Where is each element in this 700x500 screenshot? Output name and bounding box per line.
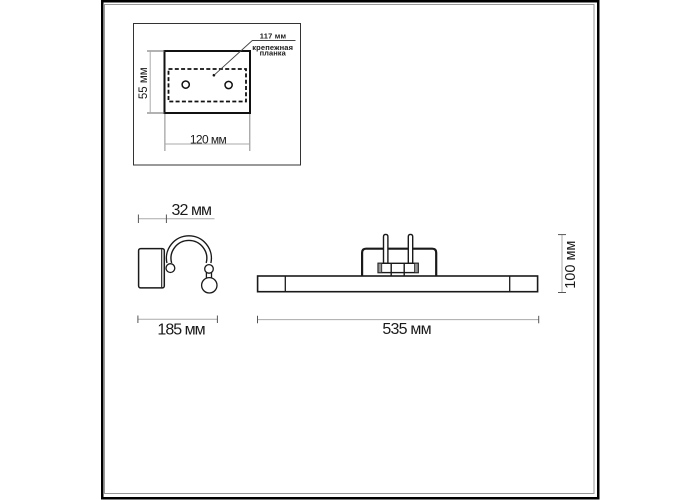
svg-text:185 мм: 185 мм <box>157 322 204 339</box>
svg-text:535 мм: 535 мм <box>382 321 430 338</box>
svg-text:55 мм: 55 мм <box>138 67 150 99</box>
svg-text:100 мм: 100 мм <box>563 241 579 289</box>
svg-text:120 мм: 120 мм <box>190 132 227 146</box>
svg-text:планка: планка <box>260 49 287 58</box>
svg-text:32 мм: 32 мм <box>172 202 212 219</box>
svg-text:117 мм: 117 мм <box>260 31 287 40</box>
